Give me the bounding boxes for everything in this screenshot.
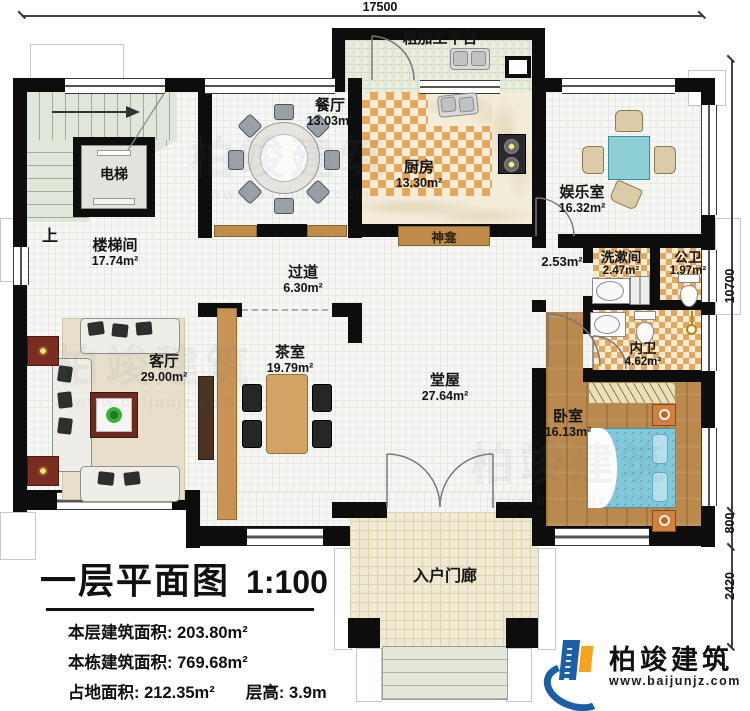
tea-cabinet (217, 308, 237, 520)
window (420, 80, 500, 94)
chair (242, 420, 262, 448)
elevator-door (93, 198, 135, 205)
porch-pier (506, 618, 538, 648)
floor-plan-page: 神龛 (0, 0, 750, 711)
toilet-tank (634, 311, 656, 320)
porch-steps (382, 646, 508, 700)
room-private-bath-label: 内卫 4.62m² (610, 340, 676, 370)
wall (13, 78, 27, 512)
plant-icon (106, 407, 122, 423)
wall (332, 502, 387, 518)
dimension-right-mid: 800 (723, 493, 739, 553)
sofa-pillow (123, 471, 140, 486)
room-tea-label: 茶室 19.79m² (258, 344, 322, 376)
room-bedroom-label: 卧室 16.13m² (536, 408, 600, 440)
burner-icon (504, 139, 519, 154)
room-stairwell-label: 楼梯间 17.74m² (80, 237, 150, 269)
elevator-label: 电梯 (81, 166, 147, 184)
wall (532, 28, 545, 92)
side-hall-area-label: 2.53m² (534, 254, 590, 270)
window (13, 247, 29, 285)
window (247, 528, 323, 546)
title-underline (46, 608, 314, 611)
flue-box (505, 56, 531, 78)
wood-sill (214, 225, 257, 237)
chair (242, 384, 262, 412)
room-porch-label: 入户门廊 (398, 567, 492, 587)
floor-area-line: 本层建筑面积: 203.80m² (68, 619, 360, 643)
plan-title: 一层平面图 (40, 552, 230, 604)
wall (532, 368, 546, 546)
wall (257, 224, 307, 237)
room-dining-label: 餐厅 13.03m² (295, 97, 365, 129)
dimension-top-value: 17500 (345, 0, 415, 15)
window (562, 78, 675, 94)
wardrobe (588, 382, 676, 404)
burner-icon (504, 157, 519, 172)
room-entertainment-label: 娱乐室 16.32m² (546, 183, 618, 217)
window (701, 428, 717, 506)
chair (312, 384, 332, 412)
sofa-pillow (97, 471, 114, 486)
plan-title-row: 一层平面图 1:100 (40, 552, 360, 604)
plan-scale: 1:100 (246, 564, 328, 601)
nightstand-lamp-icon (659, 409, 670, 420)
window (701, 315, 717, 371)
wall (583, 370, 715, 382)
window (65, 78, 165, 94)
room-kitchen-label: 厨房 13.30m² (384, 158, 454, 192)
brand-name: 柏竣建筑 (609, 646, 733, 674)
sink-oval (594, 315, 620, 334)
sink-basin (440, 96, 456, 112)
shrine-cabinet: 神龛 (398, 226, 490, 246)
wall (198, 78, 212, 238)
sink-oval (596, 281, 624, 301)
room-shrine-label: 神龛 (431, 227, 456, 246)
window (555, 528, 649, 546)
sofa-pillow (87, 321, 105, 336)
building-area-line: 本栋建筑面积: 769.68m² (68, 649, 360, 673)
room-washroom-label: 洗漱间 2.47m² (590, 249, 652, 279)
side-table-knob (38, 346, 48, 356)
brand-website: www.baijunjz.com (609, 674, 741, 688)
wall (532, 300, 546, 312)
chair (228, 150, 244, 170)
brand-logo-icon (543, 636, 599, 698)
sofa-pillow (57, 391, 73, 408)
footprint-line: 占地面积: 212.35m² 层高: 3.9m (68, 679, 360, 703)
chair (274, 104, 294, 120)
wall (348, 303, 362, 343)
room-platform-label: 粗加工平台 (380, 30, 500, 48)
steps-side-ledge (506, 648, 532, 702)
shower-stem (691, 311, 693, 324)
tv-cabinet (198, 376, 214, 460)
side-table-knob (38, 466, 48, 476)
room-main-hall-label: 堂屋 27.64m² (412, 372, 478, 404)
wall (532, 86, 546, 248)
sofa-pillow (57, 417, 73, 435)
window (205, 78, 335, 94)
kitchen-counter-floor (362, 196, 532, 224)
game-table (608, 136, 650, 180)
chair (274, 198, 294, 214)
wood-sill (307, 225, 347, 237)
chair (654, 146, 676, 174)
sofa-pillow (57, 365, 73, 383)
bed-pillow (652, 434, 668, 464)
sink-basin (458, 96, 474, 112)
porch-side-ledge (538, 548, 556, 650)
shower-head-icon (686, 324, 697, 335)
sofa-pillow (135, 321, 152, 335)
washing-machine (630, 276, 650, 305)
bed-pillow (652, 472, 668, 502)
room-living-label: 客厅 29.00m² (132, 353, 196, 385)
chair (582, 146, 604, 174)
dining-table-top (260, 134, 308, 182)
sink-basin (471, 51, 486, 66)
stairs-up-label: 上 (38, 227, 62, 247)
exterior-ledge (30, 44, 124, 80)
dimension-right-bottom: 2420 (723, 556, 739, 616)
window (701, 105, 717, 215)
brand-logo: 柏竣建筑 www.baijunjz.com (543, 636, 741, 698)
elevator-slot (97, 150, 131, 156)
room-public-bath-label: 公卫 1.97m² (660, 249, 716, 279)
stairs-treads (27, 92, 177, 140)
dimension-right-total: 10700 (723, 256, 739, 316)
room-corridor-label: 过道 6.30m² (272, 264, 334, 296)
dimension-line-top (22, 15, 702, 17)
wall (558, 234, 715, 248)
title-block: 一层平面图 1:100 本层建筑面积: 203.80m² 本栋建筑面积: 769… (40, 552, 360, 703)
sofa-pillow (111, 323, 128, 338)
chair (312, 420, 332, 448)
brand-text: 柏竣建筑 www.baijunjz.com (609, 646, 741, 688)
wall (186, 490, 200, 548)
sink-basin (453, 51, 468, 66)
exterior-ledge (0, 512, 36, 560)
chair (324, 150, 340, 170)
nightstand-lamp-icon (659, 515, 670, 526)
chair (615, 110, 643, 132)
tea-table (266, 374, 308, 454)
